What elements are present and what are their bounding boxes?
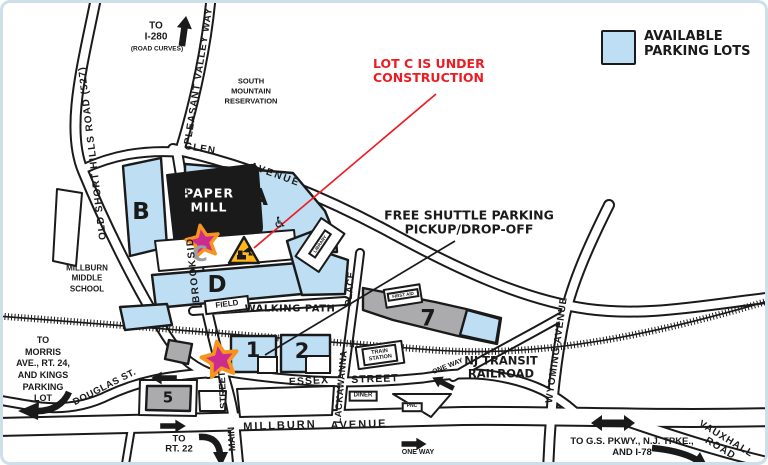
lot-label-d: D [207, 273, 226, 299]
road-label-main: MAIN [227, 427, 239, 452]
place-label-diner: DINER [349, 391, 378, 402]
construction-annotation: LOT C IS UNDER CONSTRUCTION [373, 57, 485, 86]
direction-to-morris: TO MORRIS AVE., RT. 24, AND KINGS PARKIN… [16, 335, 70, 405]
road-label-millburn-avenue: AVENUE [330, 418, 387, 432]
direction-to-i280: TO I-280 [145, 22, 168, 43]
to-rt22-arrow-icon [199, 437, 220, 454]
lot-label-b: B [132, 200, 150, 226]
parking-map: TO I-280 (ROAD CURVES) PLEASANT VALLEY W… [0, 0, 768, 465]
place-label-reservation: SOUTH MOUNTAIN RESERVATION [225, 76, 278, 105]
place-label-school: MILLBURN MIDDLE SCHOOL [66, 263, 108, 294]
lot-label-a: A [250, 186, 268, 212]
lot-label-7: 7 [420, 308, 435, 333]
road-label-millburn: MILLBURN [243, 419, 317, 434]
lot-1-driveway [258, 357, 277, 373]
lot-label-1: 1 [246, 339, 261, 363]
lot-label-5: 5 [163, 390, 173, 407]
west-parking-lot [120, 304, 172, 330]
legend-available-swatch [601, 30, 636, 65]
road-label-essex-street: STREET [351, 373, 399, 386]
gray-building [165, 340, 192, 364]
lot-2-driveway [306, 356, 330, 373]
road-curves-note: (ROAD CURVES) [131, 45, 183, 52]
wheelchair-icon: ♿ [273, 215, 286, 232]
school-building [53, 189, 82, 266]
road-label-walking-path: WALKING PATH [245, 303, 336, 314]
shuttle-annotation: FREE SHUTTLE PARKING PICKUP/DROP-OFF [384, 209, 554, 238]
lot-label-2: 2 [295, 340, 310, 364]
direction-to-rt22: TO RT. 22 [165, 435, 192, 456]
one-way-lower-label: ONE WAY [402, 449, 434, 457]
road-label-essex: ESSEX [289, 375, 330, 389]
place-label-nj-transit: NJ TRANSIT RAILROAD [464, 354, 538, 379]
legend-label: AVAILABLE PARKING LOTS [644, 30, 751, 60]
i280-arrow-icon [174, 15, 193, 47]
direction-to-gs-pkwy: TO G.S. PKWY., N.J. TPKE., AND I-78 [570, 437, 693, 459]
road-label-main-street: STREET [218, 371, 231, 409]
place-label-pnc: PNC [402, 402, 423, 412]
essex-block-building [237, 386, 334, 417]
